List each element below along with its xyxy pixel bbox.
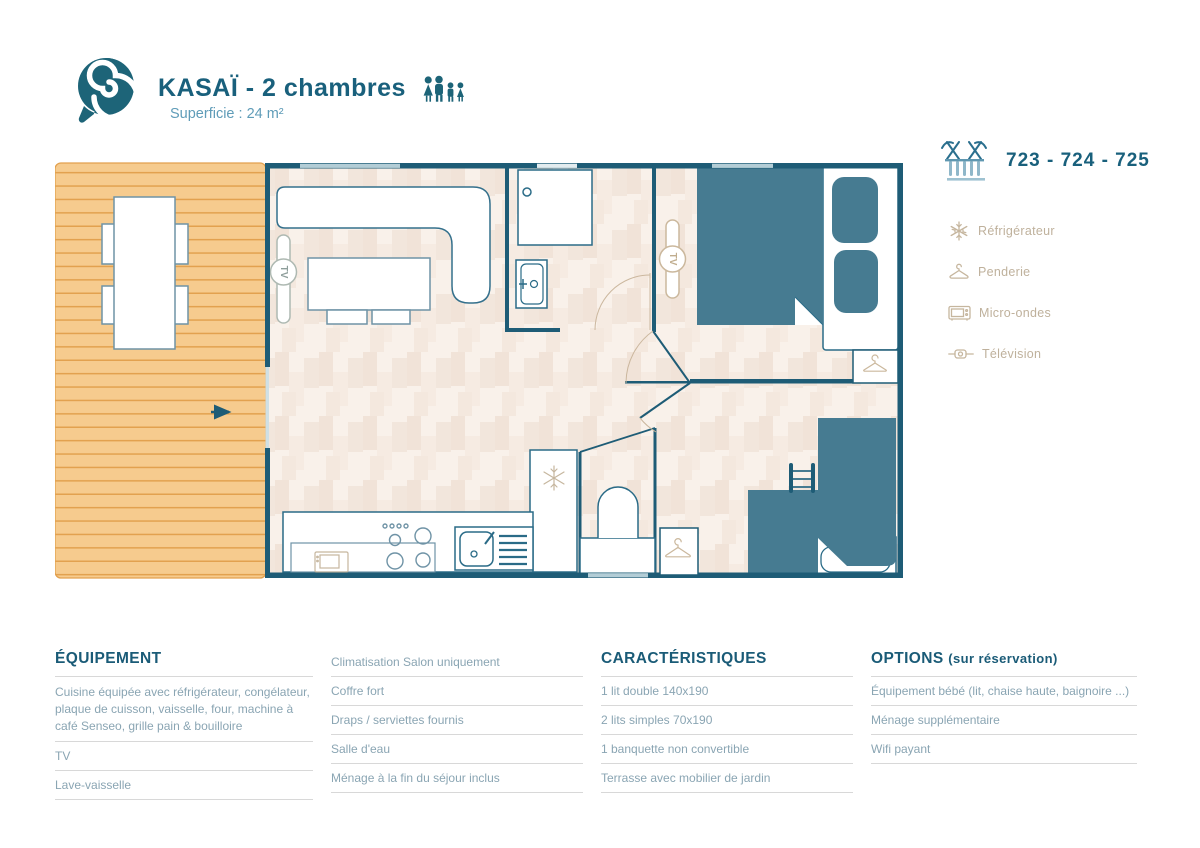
wardrobe-hallway [660, 528, 698, 575]
list-item: Lave-vaisselle [55, 771, 313, 800]
list-item: 2 lits simples 70x190 [601, 706, 853, 735]
wardrobe-bedroom1 [853, 350, 898, 383]
unit-block: 723 - 724 - 725 [938, 138, 1150, 184]
pillow [832, 177, 878, 243]
brand-logo [74, 56, 138, 131]
list-item: Ménage supplémentaire [871, 706, 1137, 735]
hanger-icon [948, 263, 970, 281]
amenity-label: Télévision [982, 347, 1041, 361]
kitchen-sink [455, 527, 533, 570]
section-title: ÉQUIPEMENT [55, 648, 313, 677]
header: KASAÏ - 2 chambres Superficie : 2 [158, 74, 470, 122]
section-equipment: ÉQUIPEMENT Cuisine équipée avec réfrigér… [55, 648, 313, 800]
page-title: KASAÏ - 2 chambres [158, 74, 406, 103]
list-item: Climatisation Salon uniquement [331, 648, 583, 677]
bedroom1-double-bed [697, 165, 898, 350]
spiral-logo-icon [74, 56, 138, 126]
amenity-refrigerator: Réfrigérateur [948, 210, 1055, 251]
toilet [598, 487, 638, 538]
tv-icon [948, 347, 974, 361]
list-item: 1 lit double 140x190 [601, 677, 853, 706]
family-4-persons-icon [422, 75, 470, 103]
list-item: TV [55, 742, 313, 771]
snowflake-icon [948, 220, 970, 242]
section-equipment-continued: Climatisation Salon uniquement Coffre fo… [331, 648, 583, 800]
microwave-icon [948, 304, 971, 322]
brochure-page: KASAÏ - 2 chambres Superficie : 2 [0, 0, 1200, 848]
list-item: Équipement bébé (lit, chaise haute, baig… [871, 677, 1137, 706]
unit-numbers: 723 - 724 - 725 [1006, 150, 1150, 172]
svg-text:TV: TV [667, 253, 678, 266]
section-title: CARACTÉRISTIQUES [601, 648, 853, 677]
section-title-suffix: (sur réservation) [948, 651, 1057, 666]
list-item: Salle d'eau [331, 735, 583, 764]
pergola-terrace-icon [938, 138, 990, 184]
amenity-label: Micro-ondes [979, 306, 1051, 320]
amenities-list: Réfrigérateur Penderie Micro-ondes Télév… [948, 210, 1055, 374]
list-item: Cuisine équipée avec réfrigérateur, cong… [55, 677, 313, 742]
amenity-label: Penderie [978, 265, 1030, 279]
section-title: OPTIONS (sur réservation) [871, 648, 1137, 677]
section-characteristics: CARACTÉRISTIQUES 1 lit double 140x190 2 … [601, 648, 853, 800]
section-options: OPTIONS (sur réservation) Équipement béb… [871, 648, 1137, 800]
list-item: Draps / serviettes fournis [331, 706, 583, 735]
list-item: 1 banquette non convertible [601, 735, 853, 764]
section-title-main: OPTIONS [871, 650, 944, 667]
amenity-television: Télévision [948, 333, 1055, 374]
info-sections: ÉQUIPEMENT Cuisine équipée avec réfrigér… [55, 648, 1137, 800]
list-item: Coffre fort [331, 677, 583, 706]
entrance-sliding-door [266, 367, 270, 448]
amenity-wardrobe: Penderie [948, 251, 1055, 292]
list-item: Terrasse avec mobilier de jardin [601, 764, 853, 793]
pillow [834, 250, 878, 313]
list-item: Ménage à la fin du séjour inclus [331, 764, 583, 793]
amenity-label: Réfrigérateur [978, 224, 1055, 238]
surface-area: Superficie : 24 m² [170, 106, 470, 122]
floor-plan: TV [55, 160, 905, 585]
svg-text:TV: TV [278, 266, 289, 279]
amenity-microwave: Micro-ondes [948, 292, 1055, 333]
terrace-table-and-chairs [102, 197, 188, 349]
list-item: Wifi payant [871, 735, 1137, 764]
